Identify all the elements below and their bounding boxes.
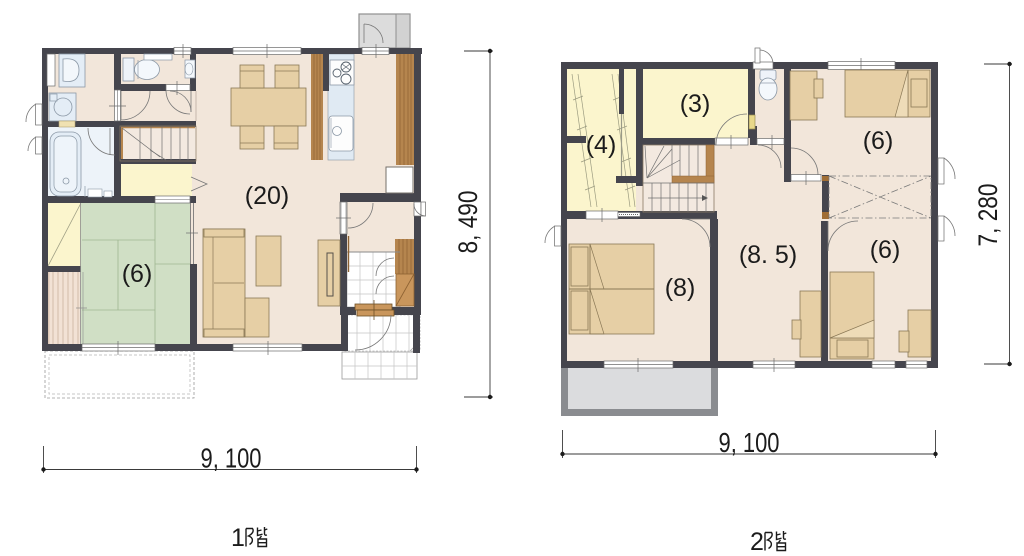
svg-text:(6): (6): [863, 127, 894, 155]
svg-text:1: 1: [231, 524, 245, 552]
svg-text:(6): (6): [122, 260, 153, 288]
svg-text:(8. 5): (8. 5): [739, 241, 797, 269]
svg-text:2: 2: [750, 528, 764, 556]
svg-text:(4): (4): [586, 131, 617, 159]
svg-text:9, 100: 9, 100: [201, 443, 262, 474]
svg-text:(6): (6): [870, 236, 901, 264]
svg-text:(8): (8): [665, 274, 696, 302]
svg-text:(3): (3): [680, 90, 711, 118]
svg-text:(20): (20): [245, 182, 289, 210]
svg-text:9, 100: 9, 100: [719, 427, 780, 458]
svg-text:8, 490: 8, 490: [453, 191, 483, 254]
svg-text:7, 280: 7, 280: [973, 184, 1003, 247]
